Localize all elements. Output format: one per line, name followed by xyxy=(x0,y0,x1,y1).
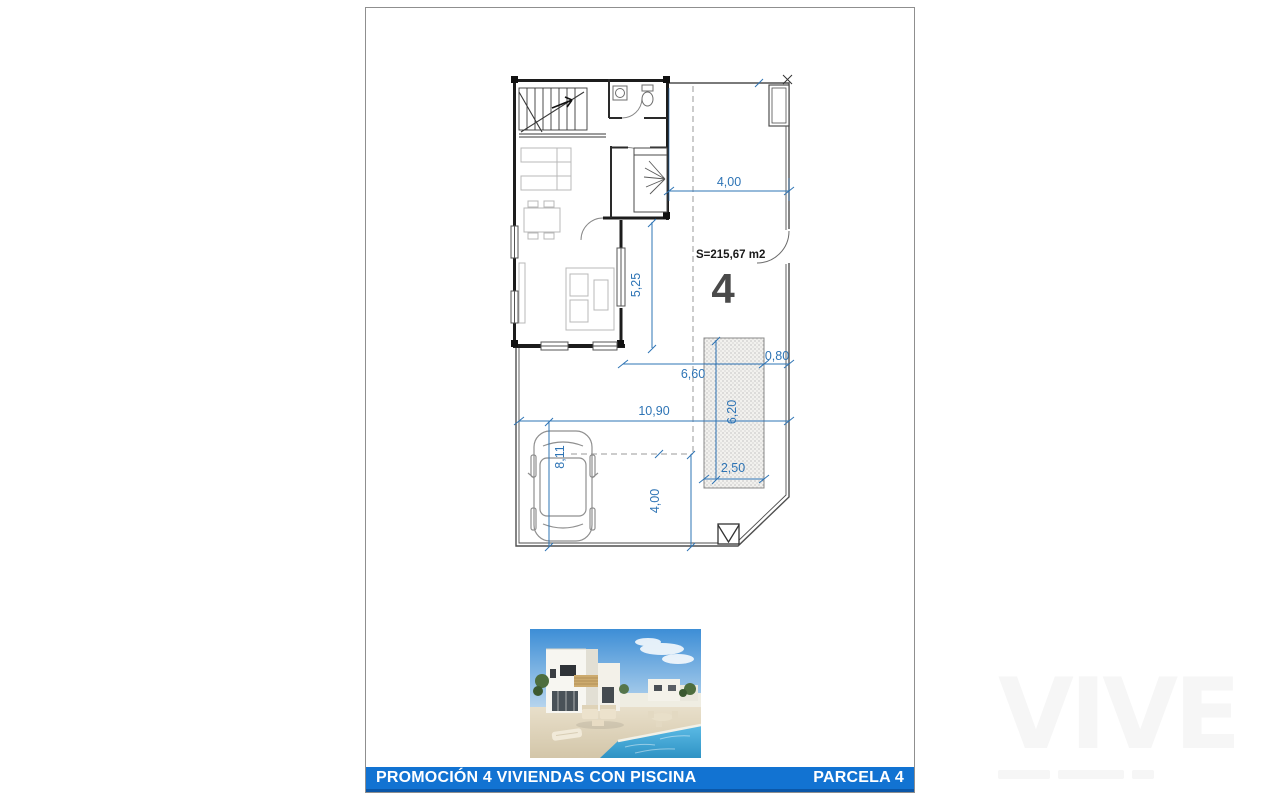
dim-driveway-depth: 8,11 xyxy=(553,445,567,468)
gate-marker xyxy=(718,524,739,544)
dim-front-setback: 4,00 xyxy=(648,489,662,513)
dim-terrace-depth: 5,25 xyxy=(629,273,643,297)
setback-dashed-lines xyxy=(571,86,693,454)
plot-area-label: S=215,67 m2 xyxy=(696,249,765,261)
dim-plot-width: 10,90 xyxy=(638,404,669,418)
dim-rear-yard-width: 6,60 xyxy=(681,367,705,381)
furniture xyxy=(519,148,614,330)
dim-pool-side-offset: 0,80 xyxy=(765,349,789,363)
brand-watermark-text: VIVE xyxy=(998,666,1248,764)
villa-photo xyxy=(530,629,701,758)
dim-pool-length: 6,20 xyxy=(725,400,739,424)
parcel-label: PARCELA 4 xyxy=(813,769,904,787)
footer-band: PROMOCIÓN 4 VIVIENDAS CON PISCINA PARCEL… xyxy=(366,767,914,792)
canvas: VIVE xyxy=(0,0,1280,800)
bathroom-fixtures xyxy=(613,85,653,106)
bed xyxy=(634,148,667,212)
plot-number: 4 xyxy=(711,265,735,312)
dim-top-setback: 4,00 xyxy=(717,175,741,189)
dim-pool-width: 2,50 xyxy=(721,461,745,475)
plan-sheet: 4,00 5,25 6,60 0,80 10,90 8,11 6,20 2,50… xyxy=(365,7,915,793)
staircase xyxy=(519,88,606,137)
promotion-title: PROMOCIÓN 4 VIVIENDAS CON PISCINA xyxy=(376,769,696,787)
brand-watermark: VIVE xyxy=(998,666,1248,779)
